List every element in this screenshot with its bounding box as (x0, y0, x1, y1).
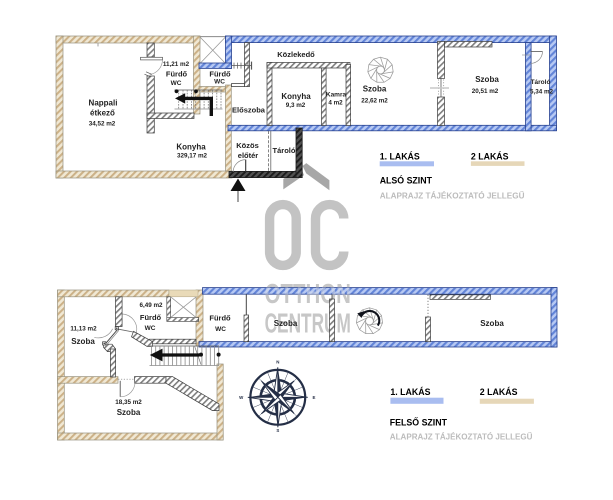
svg-text:ALSÓ SZINT: ALSÓ SZINT (380, 174, 433, 185)
svg-text:2 LAKÁS: 2 LAKÁS (480, 387, 518, 397)
svg-text:S: S (276, 428, 279, 433)
svg-text:WC: WC (171, 80, 182, 87)
svg-text:Szoba: Szoba (480, 319, 504, 328)
svg-text:5,34 m2: 5,34 m2 (530, 89, 554, 96)
svg-text:Közlekedő: Közlekedő (277, 50, 315, 59)
svg-text:FELSŐ SZINT: FELSŐ SZINT (390, 416, 448, 427)
svg-text:329,17 m2: 329,17 m2 (177, 153, 208, 160)
svg-text:11,21 m2: 11,21 m2 (163, 61, 190, 68)
svg-text:1. LAKÁS: 1. LAKÁS (380, 152, 420, 162)
svg-text:4 m2: 4 m2 (328, 100, 343, 107)
svg-text:Szoba: Szoba (71, 337, 95, 346)
svg-text:E: E (313, 395, 316, 400)
svg-text:Szoba: Szoba (475, 75, 499, 84)
svg-text:22,62 m2: 22,62 m2 (361, 97, 388, 104)
svg-text:20,51 m2: 20,51 m2 (472, 88, 499, 95)
svg-text:1. LAKÁS: 1. LAKÁS (390, 387, 430, 397)
svg-text:11,13 m2: 11,13 m2 (70, 326, 97, 333)
svg-text:34,52 m2: 34,52 m2 (89, 121, 116, 128)
svg-text:Konyha: Konyha (281, 92, 311, 101)
svg-text:előtér: előtér (238, 151, 259, 160)
svg-text:Tároló: Tároló (273, 146, 296, 155)
svg-text:Fürdő: Fürdő (166, 70, 188, 79)
svg-text:ALAPRAJZ TÁJÉKOZTATÓ JELLEGŰ: ALAPRAJZ TÁJÉKOZTATÓ JELLEGŰ (390, 430, 533, 441)
svg-text:WC: WC (215, 326, 226, 333)
svg-text:WC: WC (214, 79, 225, 86)
svg-text:Fürdő: Fürdő (209, 314, 231, 323)
svg-text:Szoba: Szoba (274, 319, 298, 328)
svg-text:WC: WC (145, 325, 156, 332)
svg-text:Szoba: Szoba (363, 84, 387, 93)
svg-text:9,3 m2: 9,3 m2 (286, 102, 306, 109)
svg-text:Kamra: Kamra (326, 92, 347, 99)
svg-text:Előszoba: Előszoba (232, 106, 266, 115)
svg-text:Fürdő: Fürdő (140, 313, 162, 322)
svg-text:Szoba: Szoba (117, 408, 141, 417)
svg-text:2 LAKÁS: 2 LAKÁS (471, 152, 509, 162)
svg-text:Közös: Közös (236, 141, 259, 150)
svg-text:Konyha: Konyha (176, 143, 206, 152)
svg-text:Nappali: Nappali (89, 99, 118, 108)
svg-text:N: N (276, 360, 279, 365)
svg-text:6,49 m2: 6,49 m2 (139, 302, 163, 309)
svg-text:étkező: étkező (90, 109, 115, 118)
svg-text:18,35 m2: 18,35 m2 (115, 399, 142, 406)
svg-text:Fürdő: Fürdő (209, 70, 231, 79)
svg-text:Tároló: Tároló (531, 79, 551, 86)
svg-text:ALAPRAJZ TÁJÉKOZTATÓ JELLEGŰ: ALAPRAJZ TÁJÉKOZTATÓ JELLEGŰ (380, 190, 525, 201)
